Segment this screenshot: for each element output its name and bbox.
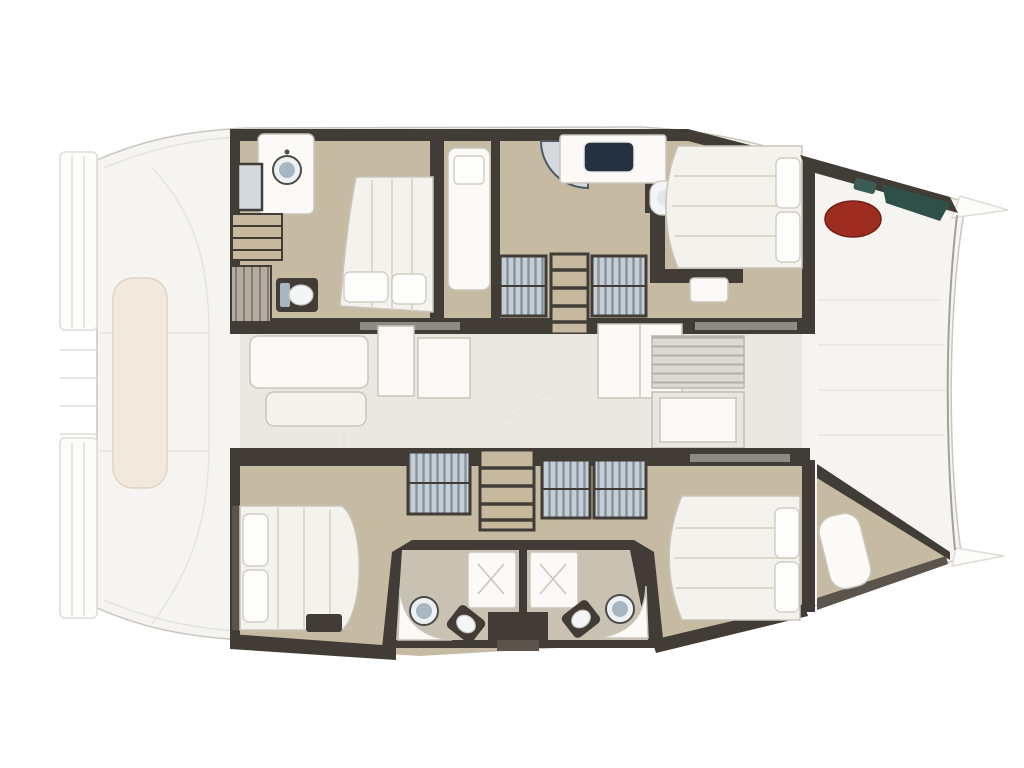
port-mid-cabin [340, 177, 433, 312]
shower-tray [238, 164, 262, 210]
bowsprit-pennant-bottom [952, 548, 1004, 566]
heads-center-step [497, 640, 539, 651]
floor-plan-canvas [0, 0, 1024, 768]
davit-lines [60, 350, 97, 434]
pillow [454, 156, 484, 184]
galley-unit-right [418, 338, 470, 398]
pillow [243, 514, 268, 566]
round-sink-basin [279, 162, 295, 178]
starboard-fwd-bulkhead [802, 460, 815, 612]
bow-round-table [825, 201, 881, 237]
bowsprit-pennant-top [952, 196, 1008, 218]
galley-cabinet-top [660, 398, 736, 442]
heads-center-divider [519, 544, 527, 614]
port-fwd-bulkhead [802, 160, 815, 334]
catamaran-floor-plan [0, 0, 1024, 768]
port-inboard-window-fwd [695, 322, 797, 330]
saloon [240, 324, 802, 448]
port-hull [230, 129, 815, 334]
swim-platform-port [60, 152, 97, 330]
cockpit-table [250, 336, 368, 388]
pillow [776, 158, 800, 208]
rectangular-sink-icon [584, 142, 634, 172]
galley-unit-left [378, 326, 414, 396]
round-sink-basin [416, 603, 432, 619]
cockpit-bench [266, 392, 366, 426]
aft-cockpit-bench [113, 278, 167, 488]
vent-unit [652, 336, 744, 388]
bed-bench [306, 614, 342, 632]
pillow [775, 562, 799, 612]
pillow [392, 274, 426, 304]
pillow [775, 508, 799, 558]
starboard-inboard-window [690, 454, 790, 462]
faucet-dot [285, 150, 290, 155]
pillow [776, 212, 800, 262]
swim-platform-starboard [60, 438, 97, 618]
heads-center-console [488, 612, 548, 642]
pillow [243, 570, 268, 622]
hanging-lockers [231, 266, 271, 322]
starboard-aft-cabin [232, 506, 359, 632]
round-sink-basin [612, 601, 628, 617]
companionway-ladder [480, 450, 534, 530]
headboard [232, 506, 240, 630]
pillow [344, 272, 388, 302]
toilet-icon [289, 285, 313, 305]
starboard-twin-heads [382, 540, 664, 651]
port-single-berth [448, 148, 490, 290]
nightstand [690, 278, 728, 302]
